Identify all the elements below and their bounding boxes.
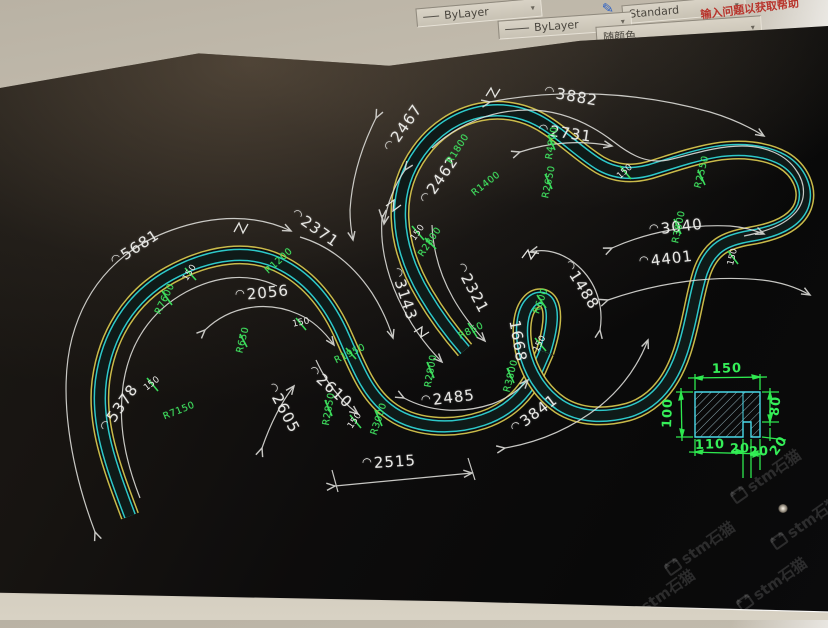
cat-logo-icon: [623, 605, 643, 624]
detail-dimension: 110: [695, 437, 726, 453]
arc-symbol: ◠: [638, 253, 650, 267]
arc-length-dimension: ◠2515: [361, 451, 416, 473]
linetype-swatch: [423, 15, 439, 17]
detail-dimension: 80: [767, 395, 784, 417]
arc-symbol: ◠: [544, 83, 557, 98]
detail-dimension: 20: [749, 444, 770, 460]
arc-symbol: ◠: [234, 286, 246, 300]
linetype-swatch: [505, 28, 529, 31]
detail-dimension: 150: [712, 361, 743, 377]
infocenter-help-text[interactable]: 输入问题以获取帮助: [700, 0, 828, 22]
photo-of-cad-screen: { "window": { "help_text": "输入问题以获取帮助" }…: [0, 0, 828, 620]
arc-symbol: ◠: [648, 221, 660, 235]
cat-logo-icon: [735, 593, 755, 612]
cad-model-space[interactable]: ◠3882◠2467◠2462◠2731◠3040◠4401◠2371◠5681…: [0, 0, 828, 620]
text-style-value: Standard: [629, 3, 680, 20]
detail-dimension: 100: [660, 398, 676, 429]
detail-dimension: 20: [730, 441, 751, 457]
linetype-dropdown-2-value: ByLayer: [534, 18, 580, 34]
arc-symbol: ◠: [420, 392, 432, 406]
arc-symbol: ◠: [391, 266, 407, 280]
chevron-down-icon: ▾: [530, 3, 535, 12]
arc-symbol: ◠: [361, 455, 373, 469]
chevron-down-icon: ▾: [750, 22, 755, 31]
screen-glare-dot: [778, 504, 788, 513]
linetype-dropdown-1-value: ByLayer: [444, 5, 490, 22]
